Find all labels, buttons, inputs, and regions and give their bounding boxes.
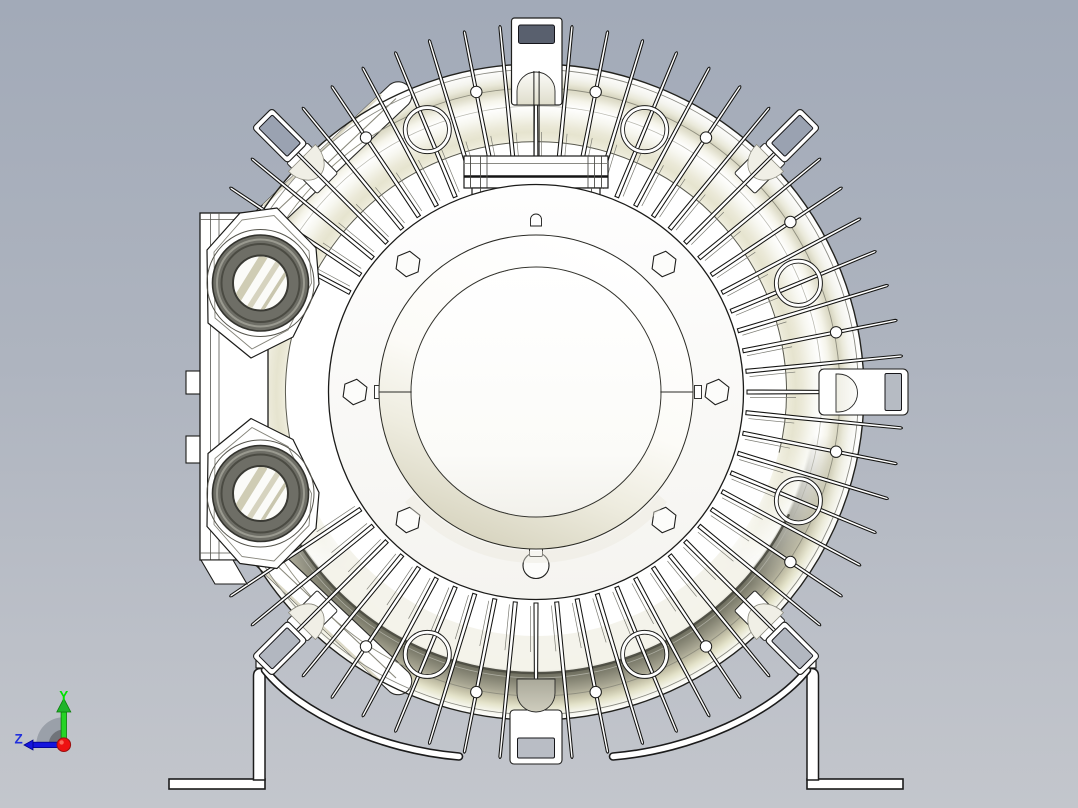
- svg-text:Y: Y: [59, 689, 68, 704]
- svg-text:Z: Z: [15, 732, 23, 747]
